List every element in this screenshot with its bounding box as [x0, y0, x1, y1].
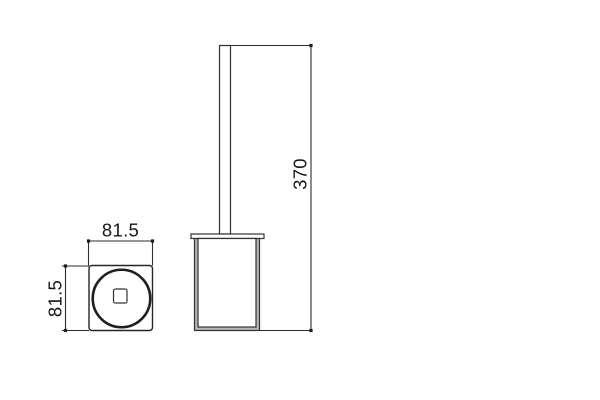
brush-handle-rod: [220, 46, 231, 235]
technical-drawing: 81.5 81.5: [0, 0, 600, 400]
dimension-tick: [64, 264, 67, 267]
drawing-canvas: 81.5 81.5: [0, 0, 600, 400]
dimension-tick: [309, 44, 312, 47]
container-rim: [191, 234, 264, 239]
dimension-tick: [151, 239, 154, 242]
width-dimension: 81.5: [87, 220, 154, 266]
dimension-tick: [309, 329, 312, 332]
width-dimension-label: 81.5: [102, 220, 139, 241]
depth-dimension: 81.5: [45, 264, 90, 332]
height-dimension-label: 370: [290, 158, 311, 190]
side-view: 370: [191, 44, 313, 332]
top-view: 81.5 81.5: [45, 220, 155, 333]
handle-socket-square: [114, 289, 128, 303]
dimension-tick: [87, 239, 90, 242]
container-body-inner: [198, 239, 256, 328]
depth-dimension-label: 81.5: [45, 280, 66, 317]
dimension-tick: [64, 329, 67, 332]
